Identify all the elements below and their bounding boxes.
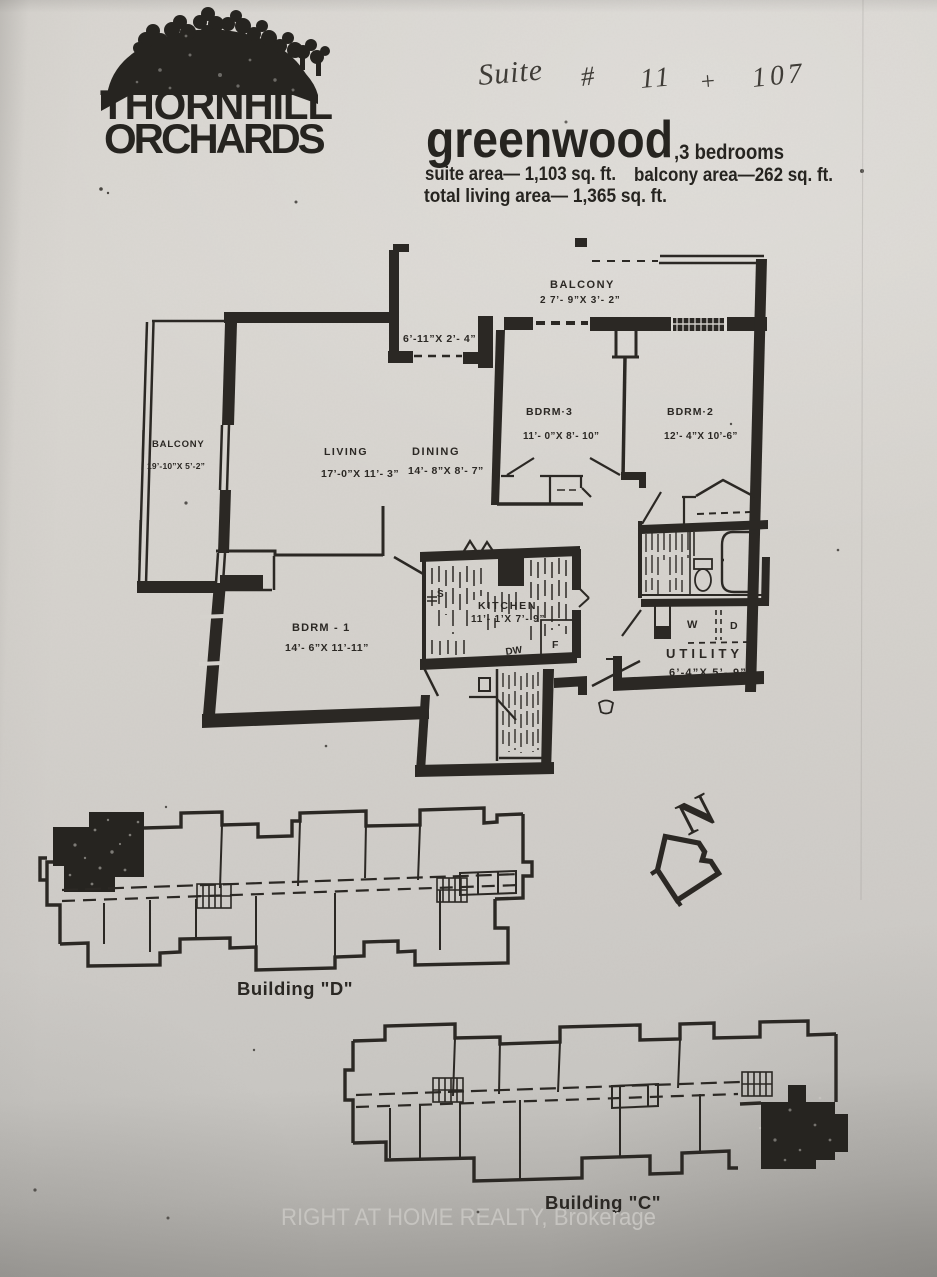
svg-text:total living area— 1,365 sq. f: total living area— 1,365 sq. ft. <box>424 186 667 207</box>
svg-text:6’-4”X 5’- 9”: 6’-4”X 5’- 9” <box>669 667 747 679</box>
svg-text:Suite: Suite <box>477 53 545 92</box>
svg-text:17’-0”X 11’- 3”: 17’-0”X 11’- 3” <box>321 468 399 480</box>
svg-text:11: 11 <box>639 61 674 95</box>
svg-text:14’- 8”X 8’- 7”: 14’- 8”X 8’- 7” <box>408 465 484 477</box>
svg-text:UTILITY: UTILITY <box>666 646 743 661</box>
svg-text:ORCHARDS: ORCHARDS <box>104 115 325 162</box>
svg-text:BDRM·3: BDRM·3 <box>526 406 573 418</box>
svg-text:2 7’- 9”X 3’- 2”: 2 7’- 9”X 3’- 2” <box>540 295 621 306</box>
svg-text:KITCHEN: KITCHEN <box>478 600 537 612</box>
svg-text:S: S <box>437 589 444 600</box>
svg-text:DINING: DINING <box>412 446 460 458</box>
svg-text:14’- 6”X 11’-11”: 14’- 6”X 11’-11” <box>285 642 369 654</box>
svg-text:BALCONY: BALCONY <box>550 279 615 291</box>
svg-text:BALCONY: BALCONY <box>152 439 205 450</box>
svg-text:suite area— 1,103 sq. ft.: suite area— 1,103 sq. ft. <box>425 164 616 185</box>
svg-text:11’- 1’X 7’- 9”: 11’- 1’X 7’- 9” <box>471 614 545 625</box>
svg-text:Building "D": Building "D" <box>237 978 353 999</box>
svg-text:+: + <box>698 68 717 96</box>
svg-text:F: F <box>552 639 559 651</box>
svg-text:BDRM·2: BDRM·2 <box>667 406 714 418</box>
svg-text:,3 bedrooms: ,3 bedrooms <box>674 141 784 164</box>
svg-text:W: W <box>687 619 698 631</box>
svg-text:balcony area—262 sq. ft.: balcony area—262 sq. ft. <box>634 165 833 186</box>
svg-text:19’-10”X 5’-2”: 19’-10”X 5’-2” <box>147 461 205 471</box>
svg-text:6’-11”X 2’- 4”: 6’-11”X 2’- 4” <box>403 333 476 345</box>
svg-text:BDRM - 1: BDRM - 1 <box>292 622 351 634</box>
svg-text:11’- 0”X 8’- 10”: 11’- 0”X 8’- 10” <box>523 431 599 442</box>
svg-text:107: 107 <box>750 57 807 93</box>
svg-text:12’- 4”X 10’-6”: 12’- 4”X 10’-6” <box>664 431 738 442</box>
svg-text:greenwood: greenwood <box>426 111 673 169</box>
svg-text:D: D <box>730 620 738 632</box>
svg-text:RIGHT AT HOME REALTY, Brokerag: RIGHT AT HOME REALTY, Brokerage <box>281 1204 656 1231</box>
svg-text:LIVING: LIVING <box>324 446 368 458</box>
